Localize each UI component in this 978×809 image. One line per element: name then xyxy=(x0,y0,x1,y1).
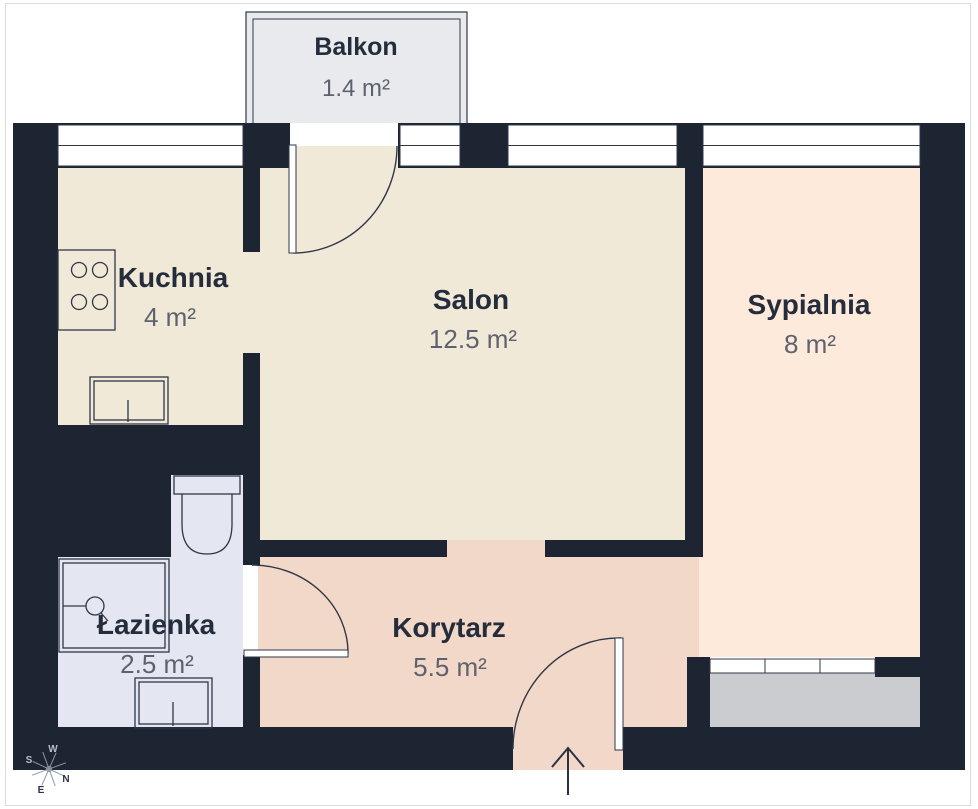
wall-bedroom-divider xyxy=(685,168,703,540)
label-salon-area: 12.5 m² xyxy=(429,324,517,354)
wall-stub-right xyxy=(875,657,923,677)
floor-plan: Balkon Kuchnia Salon Sypialnia Łazienka … xyxy=(0,0,978,809)
label-kuchnia-area: 4 m² xyxy=(144,302,196,332)
label-kuchnia-name: Kuchnia xyxy=(118,262,229,293)
wall-kitchen-divider-top xyxy=(243,168,260,252)
label-balkon-name: Balkon xyxy=(314,33,397,61)
wall-bath-divider-bottom xyxy=(243,655,260,727)
label-lazienka-area: 2.5 m² xyxy=(120,649,194,679)
label-korytarz-area: 5.5 m² xyxy=(413,652,487,682)
bathroom-door-leaf xyxy=(244,650,348,657)
label-sypialnia-name: Sypialnia xyxy=(748,289,871,320)
wall-bottom-left xyxy=(13,727,513,770)
wall-shaft-a xyxy=(13,425,260,475)
compass-south: S xyxy=(26,755,33,766)
wall-right xyxy=(920,123,965,770)
entrance-door-leaf xyxy=(615,638,623,750)
wall-shaft-b xyxy=(13,475,171,557)
label-korytarz-name: Korytarz xyxy=(392,612,506,643)
wall-stub-left xyxy=(687,657,710,727)
floor-plan-canvas: Balkon Kuchnia Salon Sypialnia Łazienka … xyxy=(0,0,978,809)
wall-kitchen-divider-bottom xyxy=(243,353,260,425)
compass-east: E xyxy=(38,785,45,796)
label-lazienka-name: Łazienka xyxy=(97,609,216,640)
room-sypialnia-floor xyxy=(699,168,920,657)
window-bedroom-bottom xyxy=(710,659,875,673)
compass-west: W xyxy=(48,744,58,755)
label-sypialnia-area: 8 m² xyxy=(784,329,836,359)
balcony-doorway-floor xyxy=(290,146,398,168)
label-salon-name: Salon xyxy=(433,284,509,315)
compass-north: N xyxy=(62,774,69,785)
balcony-door-opening xyxy=(290,123,398,146)
room-lazienka-floor xyxy=(58,557,243,727)
balcony-door-leaf xyxy=(289,145,296,253)
room-salon-floor xyxy=(243,168,685,540)
wall-salon-bottom-right xyxy=(545,540,703,557)
wall-bottom-right xyxy=(623,727,965,770)
korytarz-salon-opening xyxy=(447,540,545,557)
label-balkon-area: 1.4 m² xyxy=(322,75,390,102)
wall-salon-bottom-left xyxy=(243,540,447,557)
